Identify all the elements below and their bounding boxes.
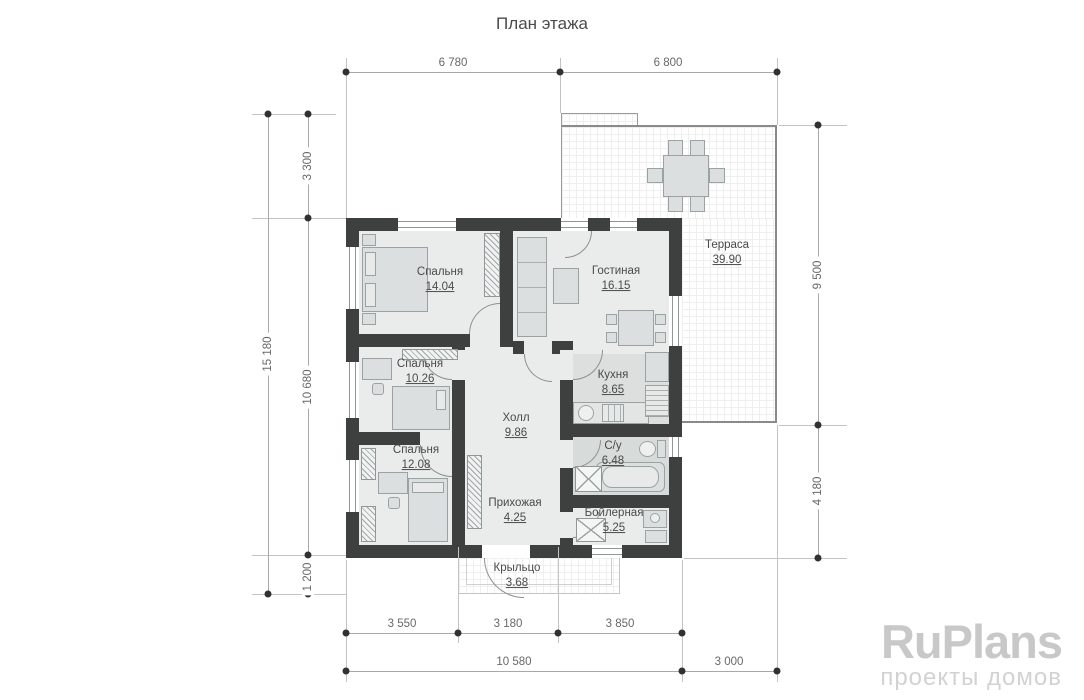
dimension-dot xyxy=(557,69,564,76)
extension-line xyxy=(346,58,347,218)
room-name: Холл xyxy=(502,411,529,426)
dining-chair xyxy=(606,332,617,343)
dim-bottom-b: 3 180 xyxy=(490,618,527,630)
room-area: 39.90 xyxy=(705,253,749,268)
wall-bathroom-left xyxy=(560,468,573,512)
dim-left-upper: 3 300 xyxy=(302,148,314,185)
dim-left-lower: 1 200 xyxy=(302,559,314,596)
room-label-bedroom2: Спальня 10.26 xyxy=(397,357,443,387)
toilet xyxy=(639,441,656,457)
bathtub-inner xyxy=(602,466,659,488)
room-label-hall: Холл 9.86 xyxy=(502,411,529,441)
fridge xyxy=(645,385,669,417)
room-area: 12.08 xyxy=(393,458,439,473)
terrace-table xyxy=(663,155,709,197)
wall-kitchen-left xyxy=(560,341,573,350)
sofa xyxy=(517,237,547,337)
wall-living-bottom xyxy=(552,341,560,354)
room-area: 8.65 xyxy=(598,383,629,398)
room-label-porch: Крыльцо 3.68 xyxy=(494,561,541,591)
page-title: План этажа xyxy=(496,14,588,34)
toilet-tank xyxy=(657,440,666,458)
wall-living-bottom xyxy=(513,341,524,354)
watermark: RuPlans проекты домов xyxy=(880,618,1062,690)
floor-plan-sheet: План этажа xyxy=(0,0,1084,700)
room-name: Терраса xyxy=(705,238,749,253)
desk xyxy=(362,358,392,380)
dim-bottom-c: 3 850 xyxy=(602,618,639,630)
window-bedroom1-left xyxy=(346,247,359,309)
extension-line xyxy=(684,558,847,559)
dim-top-right: 6 800 xyxy=(650,57,687,69)
pillow xyxy=(412,482,444,493)
dimension-dot xyxy=(343,630,350,637)
dimension-line-bottom-1 xyxy=(346,633,682,634)
dimension-dot xyxy=(815,122,822,129)
dimension-dot xyxy=(774,668,781,675)
extension-line xyxy=(252,555,346,556)
boiler-sink-bowl xyxy=(650,513,660,523)
extension-line xyxy=(779,125,847,126)
room-name: Спальня xyxy=(417,265,463,280)
nightstand xyxy=(362,313,376,325)
window-boiler-bottom xyxy=(592,545,622,558)
dim-top-left: 6 780 xyxy=(435,57,472,69)
wall-bathroom-left xyxy=(560,437,573,440)
dimension-dot xyxy=(343,668,350,675)
pillow xyxy=(365,252,376,276)
room-area: 10.26 xyxy=(397,372,443,387)
dimension-dot xyxy=(774,69,781,76)
boiler-unit xyxy=(645,530,667,543)
terrace-chair xyxy=(709,168,725,183)
wall-bedroom3-right xyxy=(452,445,465,545)
dimension-dot xyxy=(305,552,312,559)
dimension-dot xyxy=(455,630,462,637)
room-name: Прихожая xyxy=(488,496,541,511)
wardrobe-entry xyxy=(467,455,482,529)
terrace-chair xyxy=(668,140,683,156)
wall-bedroom1-bottom xyxy=(359,334,470,347)
window-bedroom1-top xyxy=(398,218,456,231)
dimension-line-bottom-2 xyxy=(346,671,777,672)
wall-exterior-right xyxy=(669,218,682,558)
dim-bottom-right: 3 000 xyxy=(711,656,748,668)
window-living-top-right xyxy=(610,218,637,231)
dimension-dot xyxy=(555,630,562,637)
room-area: 4.25 xyxy=(488,511,541,526)
desk-chair xyxy=(372,383,384,395)
room-label-bathroom: С/у 6.48 xyxy=(602,439,624,469)
wall-boiler-left xyxy=(560,538,573,545)
dim-bottom-a: 3 550 xyxy=(384,618,421,630)
room-area: 9.86 xyxy=(502,426,529,441)
dim-left-middle: 10 680 xyxy=(302,365,314,408)
wall-bedroom1-right xyxy=(500,231,513,347)
window-bedroom3-left xyxy=(346,460,359,512)
stove xyxy=(602,404,624,422)
watermark-tagline: проекты домов xyxy=(880,666,1062,690)
room-area: 5.25 xyxy=(585,521,644,536)
front-door-opening xyxy=(482,545,530,558)
wardrobe-bedroom3 xyxy=(361,448,376,480)
extension-line xyxy=(252,218,346,219)
terrace-chair xyxy=(647,168,663,183)
terrace-chair xyxy=(690,196,705,212)
window-living-top-left xyxy=(561,218,588,231)
dim-right-upper: 9 500 xyxy=(812,257,824,294)
wall-bathroom-top xyxy=(560,424,682,437)
room-label-bedroom1: Спальня 14.04 xyxy=(417,265,463,295)
extension-line xyxy=(682,560,683,682)
terrace-door xyxy=(669,296,682,346)
room-name: Кухня xyxy=(598,368,629,383)
dimension-dot xyxy=(343,69,350,76)
pillow xyxy=(365,283,376,307)
wall-bedroom2-right xyxy=(452,380,465,432)
window-bedroom2-left xyxy=(346,362,359,418)
dim-bottom-total: 10 580 xyxy=(492,656,535,668)
dimension-dot xyxy=(679,668,686,675)
dimension-dot xyxy=(305,215,312,222)
room-label-terrace: Терраса 39.90 xyxy=(705,238,749,268)
room-area: 14.04 xyxy=(417,280,463,295)
terrace-chair xyxy=(668,196,683,212)
extension-line xyxy=(560,58,561,113)
wall-corner-patch xyxy=(452,432,465,445)
dimension-dot xyxy=(265,591,272,598)
nightstand xyxy=(362,234,376,246)
dining-chair xyxy=(655,314,666,325)
room-label-living: Гостиная 16.15 xyxy=(592,264,640,294)
extension-line xyxy=(346,560,347,682)
dining-chair xyxy=(606,314,617,325)
pillow xyxy=(436,390,446,410)
dining-chair xyxy=(655,332,666,343)
coffee-table xyxy=(553,268,579,304)
room-label-bedroom3: Спальня 12.08 xyxy=(393,443,439,473)
room-name: Гостиная xyxy=(592,264,640,279)
kitchen-sink xyxy=(578,405,594,421)
kitchen-cabinet xyxy=(645,352,669,382)
wardrobe-bedroom1 xyxy=(484,233,500,297)
wall-kitchen-left xyxy=(560,380,573,424)
room-name: С/у xyxy=(602,439,624,454)
dimension-dot xyxy=(679,630,686,637)
dimension-dot xyxy=(815,555,822,562)
room-label-kitchen: Кухня 8.65 xyxy=(598,368,629,398)
room-label-entry: Прихожая 4.25 xyxy=(488,496,541,526)
dimension-dot xyxy=(265,111,272,118)
wardrobe-bedroom3 xyxy=(361,506,376,542)
room-area: 6.48 xyxy=(602,454,624,469)
extension-line xyxy=(777,425,778,682)
desk-chair xyxy=(388,497,400,509)
room-area: 16.15 xyxy=(592,279,640,294)
dimension-dot xyxy=(305,111,312,118)
watermark-brand: RuPlans xyxy=(880,618,1062,666)
room-label-boiler: Бойлерная 5.25 xyxy=(585,506,644,536)
room-name: Спальня xyxy=(397,357,443,372)
room-name: Спальня xyxy=(393,443,439,458)
dimension-dot xyxy=(815,422,822,429)
window-bathroom-right xyxy=(669,437,682,457)
room-area: 3.68 xyxy=(494,576,541,591)
dim-right-lower: 4 180 xyxy=(812,473,824,510)
room-name: Крыльцо xyxy=(494,561,541,576)
extension-line xyxy=(779,425,847,426)
room-name: Бойлерная xyxy=(585,506,644,521)
dining-table xyxy=(618,310,654,346)
washing-machine xyxy=(575,466,602,492)
dimension-line-left-inner xyxy=(308,114,309,594)
terrace-chair xyxy=(690,140,705,156)
dim-left-total: 15 180 xyxy=(262,332,274,375)
desk xyxy=(378,472,408,494)
